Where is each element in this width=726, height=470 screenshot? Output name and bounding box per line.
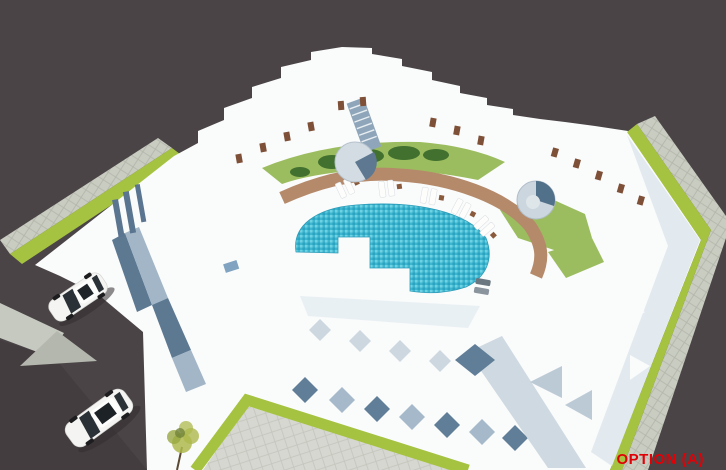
hedge — [423, 149, 449, 161]
side-table — [397, 184, 403, 190]
tree-foliage — [175, 428, 185, 438]
hedge — [388, 146, 420, 160]
door-opening — [360, 97, 367, 106]
architectural-render-canvas — [0, 0, 726, 470]
door-opening — [338, 101, 345, 110]
side-table — [439, 195, 445, 201]
stair-tower-east-core — [526, 195, 540, 209]
option-label: OPTION (A) — [617, 451, 705, 468]
render-viewport: OPTION (A) — [0, 0, 726, 470]
hedge — [290, 167, 310, 177]
